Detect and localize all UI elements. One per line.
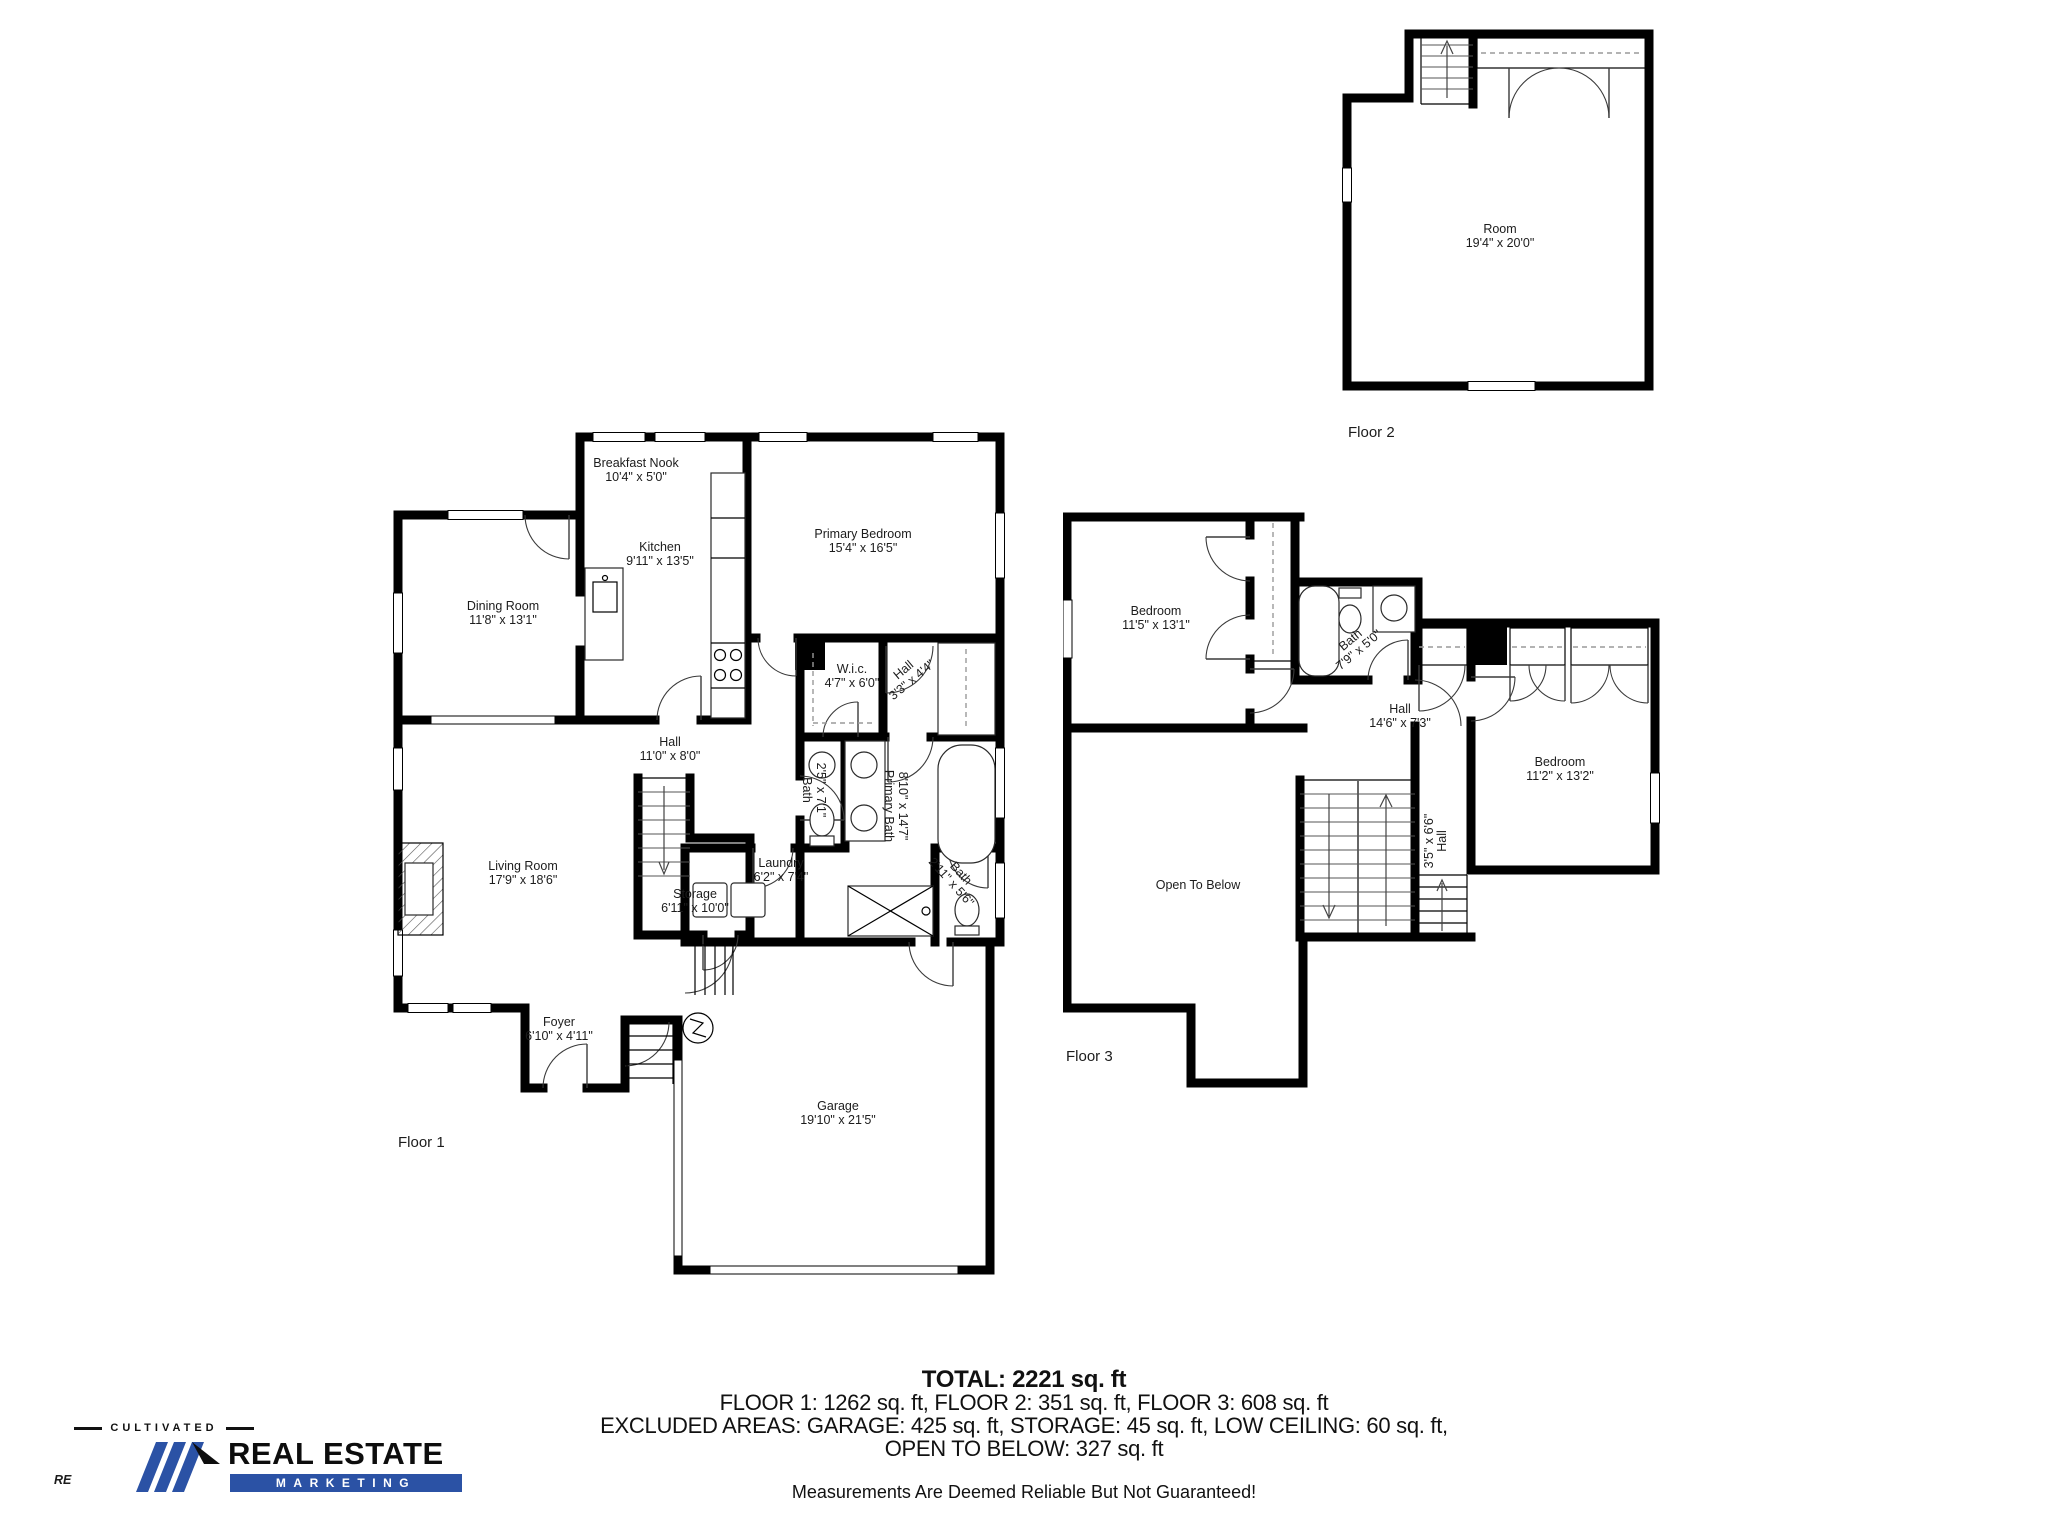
label-hall: Hall14'6" x 7'3" (1369, 702, 1431, 730)
floor-1-caption: Floor 1 (398, 1134, 445, 1151)
entry-steps (627, 1022, 673, 1084)
garage-door (710, 1266, 958, 1274)
label-room: Room19'4" x 20'0" (1466, 222, 1535, 250)
label-wic: W.i.c.4'7" x 6'0" (825, 662, 880, 690)
label-primary-bedroom: Primary Bedroom15'4" x 16'5" (814, 527, 911, 555)
brand-logo: CULTIVATED RE REAL ESTATE MARKETING (52, 1418, 432, 1513)
label-kitchen: Kitchen9'11" x 13'5" (626, 540, 694, 568)
label-foyer: Foyer6'10" x 4'11" (525, 1015, 593, 1043)
logo-mark-letters: RE (54, 1473, 72, 1487)
floor-2-plan: Room19'4" x 20'0" (1341, 28, 1657, 394)
floor-3-caption: Floor 3 (1066, 1048, 1113, 1065)
total-area: TOTAL: 2221 sq. ft (0, 1368, 2048, 1391)
floor2-stairs (1421, 34, 1473, 104)
shower-symbol (848, 886, 933, 936)
logo-band: MARKETING (230, 1474, 462, 1492)
toilet-tank-2 (955, 926, 979, 935)
tub (938, 745, 995, 863)
black-block (1471, 623, 1507, 665)
label-garage: Garage19'10" x 21'5" (800, 1099, 876, 1127)
logo-name: REAL ESTATE (228, 1436, 444, 1472)
floor1-walls (398, 437, 1000, 1270)
fireplace (398, 843, 443, 935)
label-dining-room: Dining Room11'8" x 13'1" (467, 599, 539, 627)
dryer (731, 883, 765, 917)
kitchen-counter-right (711, 473, 745, 718)
label-bedroom2: Bedroom11'2" x 13'2" (1526, 755, 1594, 783)
label-hall: Hall11'0" x 8'0" (640, 735, 701, 763)
label-living-room: Living Room17'9" x 18'6" (488, 859, 557, 887)
label-bedroom1: Bedroom11'5" x 13'1" (1122, 604, 1190, 632)
label-laundry: Laundry6'2" x 7'4" (754, 856, 809, 884)
tagline-dash-left (74, 1427, 102, 1430)
floor3-stairs (1300, 780, 1467, 935)
floor2-walls (1347, 34, 1649, 386)
label-breakfast-nook: Breakfast Nook10'4" x 5'0" (593, 456, 679, 484)
label-open-to-below: Open To Below (1156, 878, 1242, 892)
toilet-tank (1339, 588, 1361, 598)
floor2-labels: Room19'4" x 20'0" (1466, 222, 1535, 250)
floor2-closet (1477, 38, 1647, 118)
logo-stripes (136, 1442, 204, 1492)
label-primary-bath: 8'10" x 14'7"Primary Bath (882, 770, 910, 842)
bath-sink (1381, 595, 1407, 621)
floor-1-plan: Breakfast Nook10'4" x 5'0" Kitchen9'11" … (393, 418, 1011, 1298)
garage-side-door (674, 1060, 682, 1256)
floor1-windows (394, 433, 1005, 1275)
floor-areas: FLOOR 1: 1262 sq. ft, FLOOR 2: 351 sq. f… (0, 1391, 2048, 1414)
tagline-dash-right (226, 1427, 254, 1430)
label-hall-small: 3'5" x 6'6"Hall (1422, 814, 1449, 869)
floor-3-plan: Bedroom11'5" x 13'1" Bath7'9" x 5'0" Hal… (1063, 511, 1663, 1091)
floor-2-caption: Floor 2 (1348, 424, 1395, 441)
electrical-symbol (683, 1013, 713, 1043)
floor3-walls (1067, 517, 1655, 1083)
toilet-tank (810, 836, 834, 846)
chimney (795, 642, 825, 670)
logo-mark: RE (52, 1432, 224, 1498)
